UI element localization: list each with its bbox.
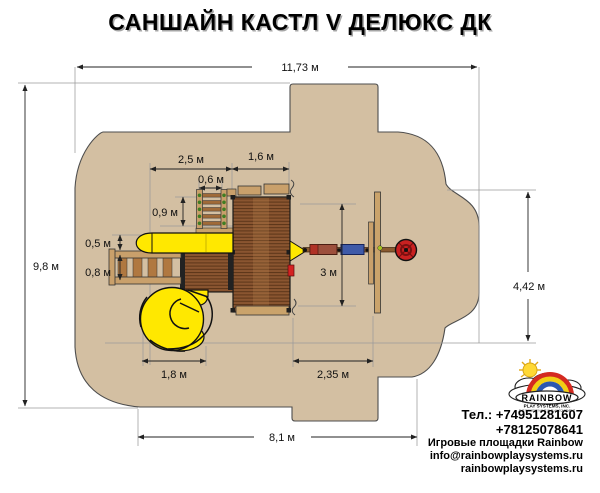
dim-spiral-width: 1,8 м [161, 369, 187, 381]
aframe-leg-short [369, 222, 374, 284]
contact-phone-1: Тел.: +74951281607 [428, 407, 583, 422]
dim-main-deck: 1,6 м [248, 151, 274, 163]
dim-climb-depth: 0,9 м [152, 207, 178, 219]
dim-slide-width: 0,5 м [85, 238, 111, 250]
sun-icon [519, 359, 541, 377]
dim-climb-width: 0,6 м [198, 174, 224, 186]
contact-email: info@rainbowplaysystems.ru [428, 450, 583, 463]
contact-block: Тел.: +74951281607 +78125078641 Игровые … [428, 407, 583, 475]
dim-deck-offset: 2,5 м [178, 154, 204, 166]
dim-base-width: 8,1 м [269, 432, 295, 444]
dim-total-height: 9,8 м [33, 261, 59, 273]
dim-right-height: 4,42 м [513, 281, 545, 293]
contact-website: rainbowplaysystems.ru [428, 463, 583, 476]
main-deck [227, 180, 296, 315]
playground-plan-page: САНШАЙН КАСТЛ V ДЕЛЮКС ДК [0, 0, 600, 493]
contact-caption: Игровые площадки Rainbow [428, 437, 583, 450]
straight-slide [136, 233, 233, 253]
swing-seat-2 [341, 245, 364, 255]
dim-swing-bay: 2,35 м [317, 369, 349, 381]
tire-swing [396, 240, 417, 261]
rainbow-logo: RAINBOW PLAY SYSTEMS, INC. THE BIGGEST N… [497, 356, 597, 414]
aframe-leg-long [375, 192, 381, 313]
contact-phone-2: +78125078641 [428, 422, 583, 437]
deck-accessory-red [288, 265, 294, 276]
swing-seat-1 [310, 245, 337, 255]
spiral-tube-slide [140, 288, 213, 352]
dim-total-width: 11,73 м [281, 62, 318, 74]
dim-swing-clearance: 3 м [320, 267, 337, 279]
dim-ladder-width: 0,8 м [85, 267, 111, 279]
logo-brand: RAINBOW [522, 393, 573, 403]
